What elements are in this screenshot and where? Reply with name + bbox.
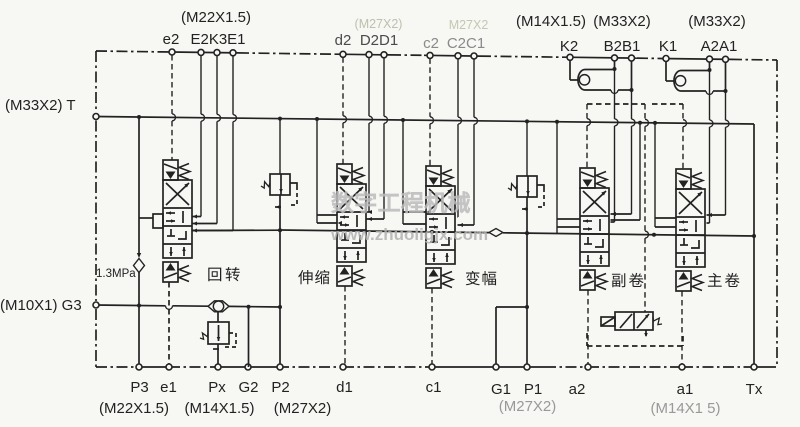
svg-text:(M14X1.5): (M14X1.5) (184, 400, 254, 417)
svg-text:c2: c2 (423, 35, 439, 52)
svg-text:(M27X2): (M27X2) (355, 17, 403, 31)
svg-text:(M10X1) G3: (M10X1) G3 (0, 297, 82, 314)
svg-text:M27X2: M27X2 (449, 18, 489, 32)
svg-text:(M14X1.5): (M14X1.5) (516, 13, 586, 30)
svg-text:(M33X2) T: (M33X2) T (5, 97, 76, 114)
svg-text:P1: P1 (524, 381, 542, 398)
svg-text:P2: P2 (271, 379, 289, 396)
svg-text:(M27X2): (M27X2) (274, 400, 332, 417)
svg-text:A2A1: A2A1 (701, 38, 738, 55)
svg-text:(M22X1.5): (M22X1.5) (181, 9, 251, 26)
svg-text:(M33X2): (M33X2) (593, 13, 651, 30)
svg-text:www.zhuoligjx.com: www.zhuoligjx.com (330, 225, 488, 244)
svg-text:G1: G1 (491, 381, 511, 398)
svg-text:K1: K1 (659, 38, 677, 55)
svg-text:a2: a2 (569, 381, 586, 398)
svg-text:G2: G2 (238, 379, 258, 396)
svg-text:Px: Px (208, 379, 226, 396)
svg-text:C2C1: C2C1 (447, 35, 485, 52)
svg-text:d1: d1 (336, 379, 353, 396)
svg-text:E2K3E1: E2K3E1 (190, 31, 245, 48)
svg-text:Tx: Tx (746, 381, 763, 398)
svg-text:D2D1: D2D1 (360, 32, 398, 49)
svg-text:(M33X2): (M33X2) (688, 13, 746, 30)
svg-text:K2: K2 (560, 38, 578, 55)
svg-text:(M22X1.5): (M22X1.5) (99, 400, 169, 417)
svg-text:B2B1: B2B1 (604, 38, 641, 55)
svg-text:e2: e2 (163, 31, 180, 48)
svg-text:(M14X1 5): (M14X1 5) (650, 400, 720, 417)
svg-text:P3: P3 (130, 379, 148, 396)
svg-text:e1: e1 (160, 379, 177, 396)
svg-text:d2: d2 (335, 32, 352, 49)
svg-text:c1: c1 (426, 379, 442, 396)
svg-text:(M27X2): (M27X2) (499, 398, 557, 415)
svg-text:1.3MPa: 1.3MPa (96, 268, 136, 280)
svg-text:a1: a1 (677, 381, 694, 398)
